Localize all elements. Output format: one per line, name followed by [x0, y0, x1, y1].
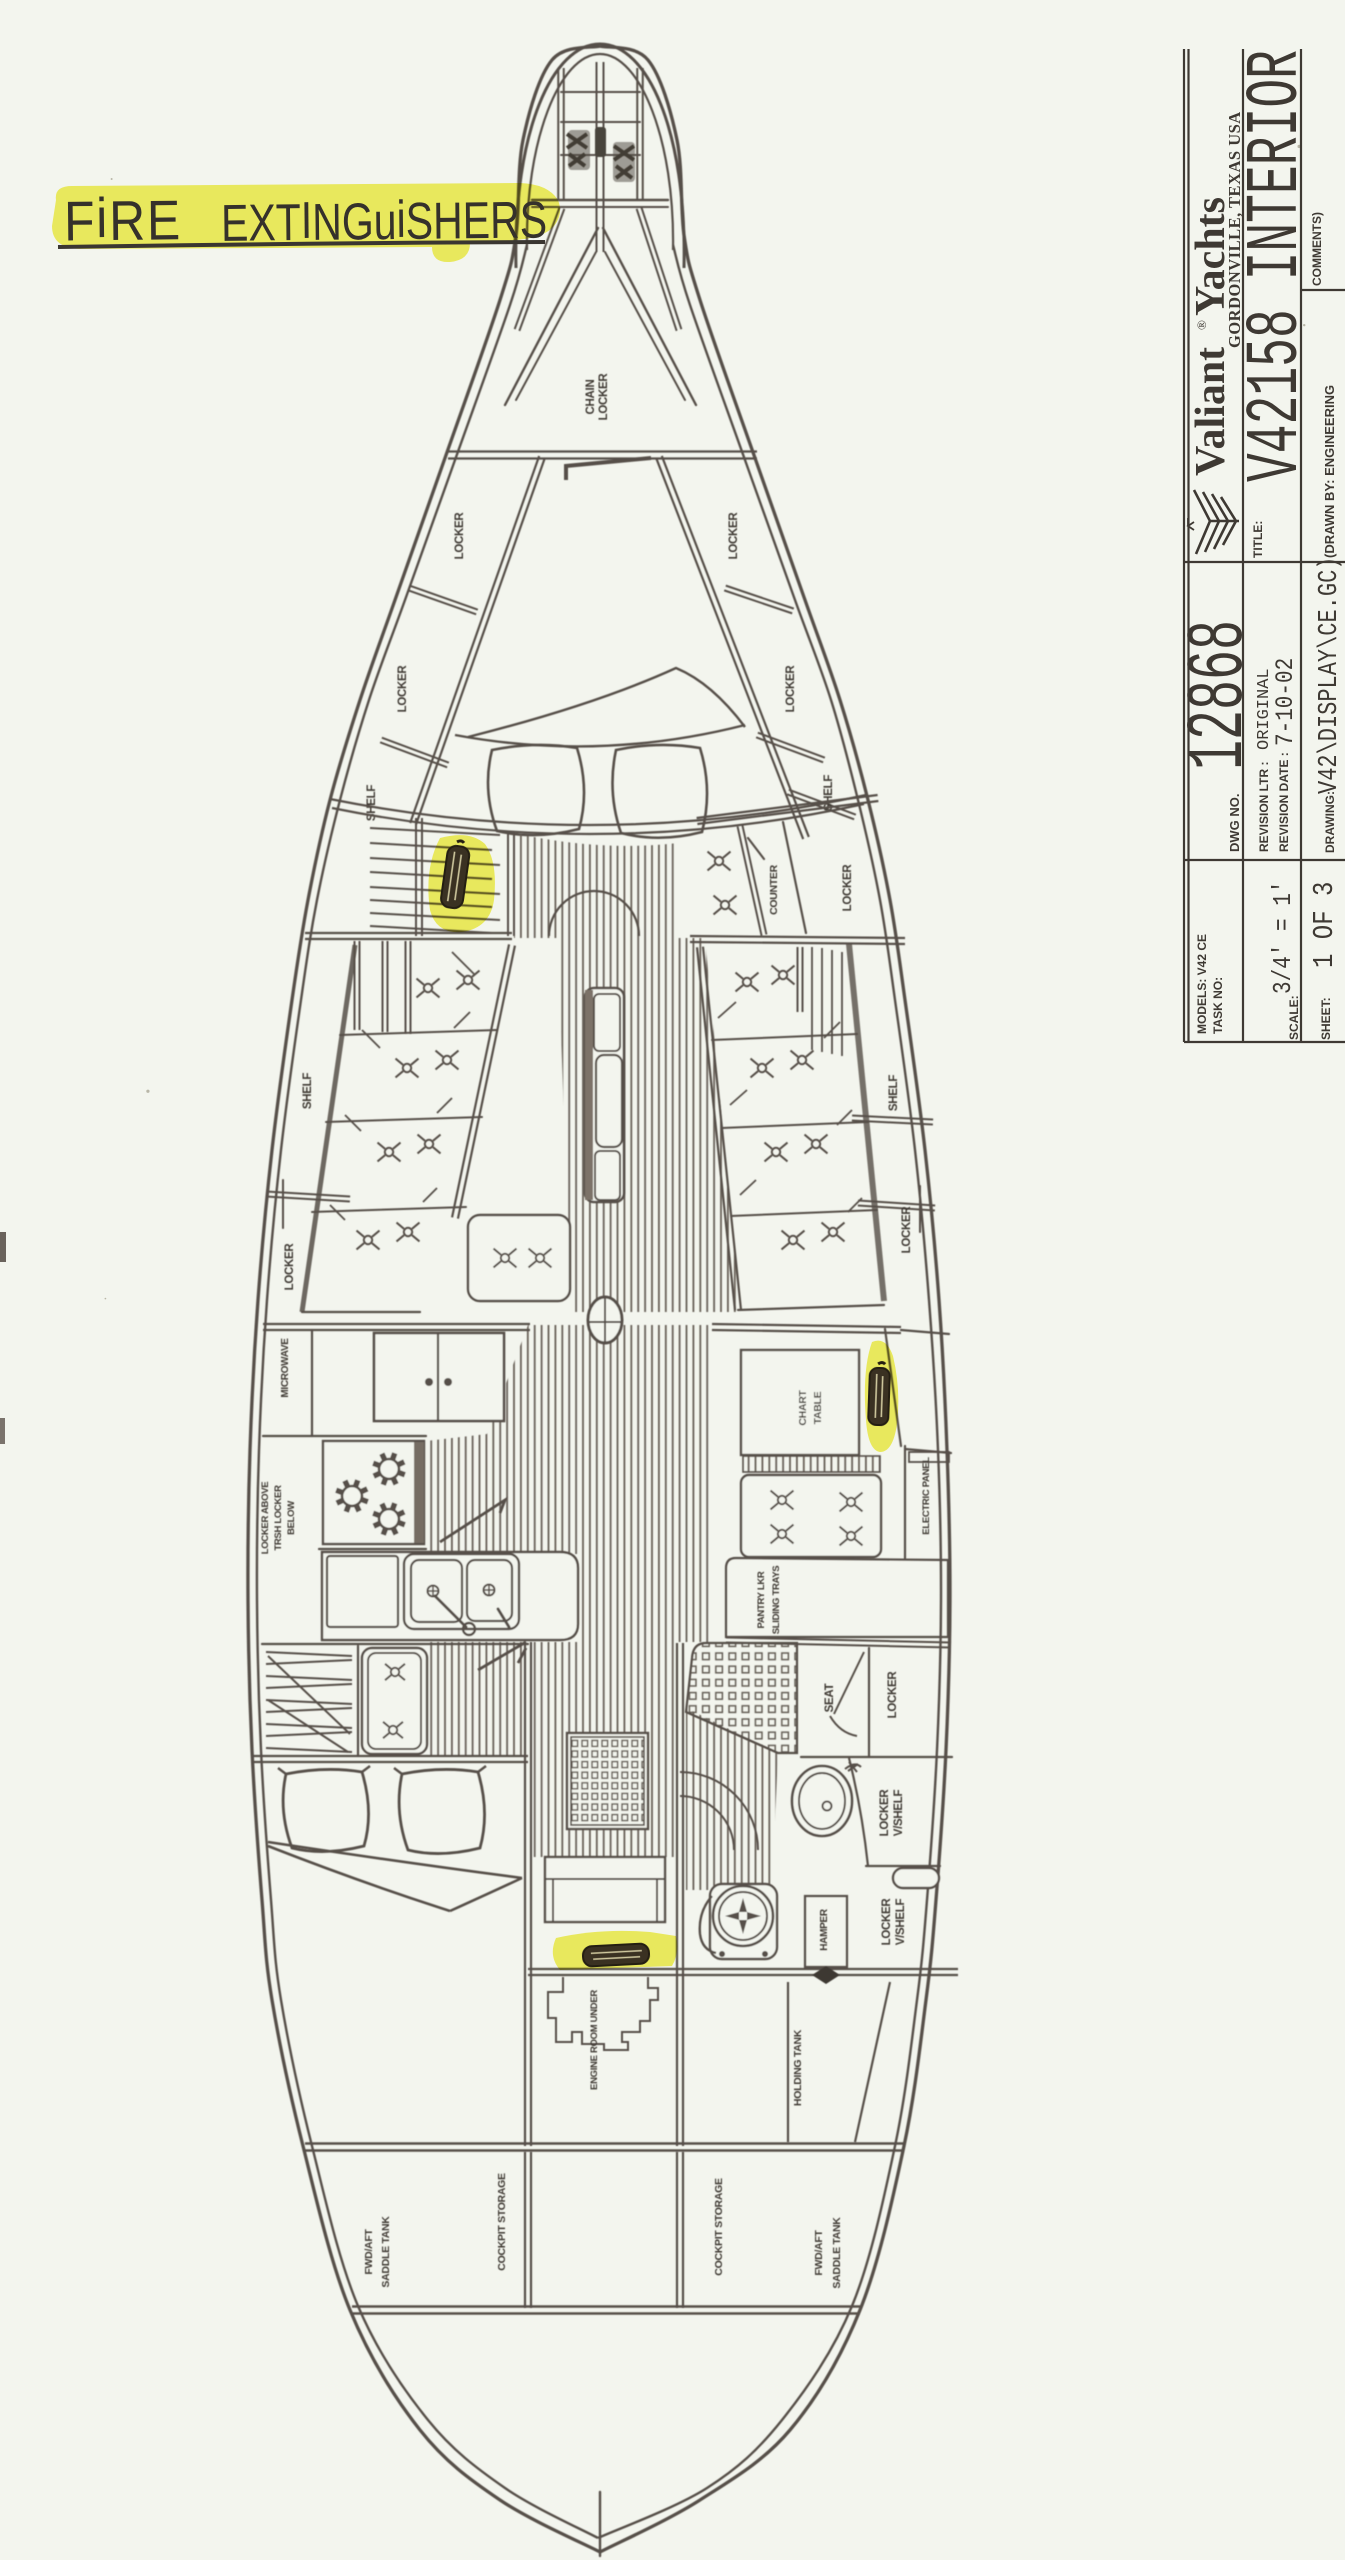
svg-text:MODELS: V42 CE: MODELS: V42 CE [1195, 934, 1209, 1034]
svg-text:CHART: CHART [797, 1389, 809, 1425]
svg-text:LOCKER: LOCKER [785, 665, 797, 713]
svg-text:V42\DISPLAY\CE.GC): V42\DISPLAY\CE.GC) [1315, 557, 1344, 794]
svg-text:LOCKER: LOCKER [284, 1243, 296, 1291]
svg-text:V/SHELF: V/SHELF [895, 1898, 907, 1945]
svg-text:LOCKER: LOCKER [598, 373, 610, 421]
svg-text:LOCKER: LOCKER [842, 864, 854, 912]
svg-text:LOCKER: LOCKER [454, 512, 466, 560]
svg-text:TITLE:: TITLE: [1251, 521, 1265, 558]
svg-text:1 OF 3: 1 OF 3 [1308, 882, 1341, 968]
svg-text:(DRAWN BY: ENGINEERING: (DRAWN BY: ENGINEERING [1322, 385, 1337, 558]
svg-text:LOCKER: LOCKER [901, 1206, 913, 1254]
svg-text:SADDLE TANK: SADDLE TANK [831, 2217, 843, 2289]
svg-text:PANTRY LKR: PANTRY LKR [756, 1571, 767, 1628]
svg-text:LOCKER: LOCKER [397, 665, 409, 713]
svg-text:LOCKER ABOVE: LOCKER ABOVE [260, 1482, 271, 1555]
svg-text:12868: 12868 [1175, 620, 1266, 770]
svg-text:REVISION LTR :: REVISION LTR : [1257, 762, 1271, 852]
svg-text:HAMPER: HAMPER [819, 1908, 830, 1951]
svg-text:®: ® [1194, 320, 1209, 330]
svg-text:COMMENTS): COMMENTS) [1310, 212, 1324, 286]
svg-text:FiRE: FiRE [64, 185, 183, 252]
svg-text:CHAIN: CHAIN [585, 380, 597, 415]
svg-text:LOCKER: LOCKER [728, 512, 740, 560]
svg-text:REVISION DATE :: REVISION DATE : [1277, 752, 1291, 852]
svg-text:SCALE:: SCALE: [1287, 995, 1301, 1040]
svg-text:COUNTER: COUNTER [768, 864, 780, 915]
svg-text:LOCKER: LOCKER [879, 1789, 891, 1837]
svg-text:Valiant: Valiant [1188, 347, 1234, 476]
svg-text:SHEET:: SHEET: [1319, 997, 1333, 1040]
svg-text:7-10-02: 7-10-02 [1271, 658, 1299, 746]
svg-text:DWG NO.: DWG NO. [1227, 794, 1242, 853]
svg-text:DRAWING:: DRAWING: [1323, 791, 1337, 853]
svg-text:SLIDING TRAYS: SLIDING TRAYS [771, 1566, 782, 1635]
svg-text:ELECTRIC PANEL: ELECTRIC PANEL [921, 1457, 932, 1535]
svg-text:TASK NO:: TASK NO: [1211, 977, 1225, 1034]
svg-text:ENGINE ROOM UNDER: ENGINE ROOM UNDER [589, 1990, 600, 2090]
svg-text:LOCKER: LOCKER [881, 1898, 893, 1946]
svg-text:COCKPIT STORAGE: COCKPIT STORAGE [496, 2173, 508, 2271]
svg-text:FWD/AFT: FWD/AFT [363, 2229, 375, 2275]
svg-text:BELOW: BELOW [286, 1501, 297, 1535]
svg-text:LOCKER: LOCKER [887, 1671, 899, 1719]
svg-text:3/4' = 1': 3/4' = 1' [1269, 881, 1299, 994]
svg-text:V/SHELF: V/SHELF [893, 1789, 905, 1836]
svg-text:SADDLE TANK: SADDLE TANK [380, 2216, 392, 2288]
svg-text:SEAT: SEAT [824, 1683, 836, 1712]
svg-text:TABLE: TABLE [812, 1391, 824, 1424]
svg-text:V42158 INTERIOR: V42158 INTERIOR [1234, 50, 1318, 482]
svg-text:SHELF: SHELF [302, 1073, 314, 1109]
svg-text:COCKPIT STORAGE: COCKPIT STORAGE [713, 2178, 725, 2276]
svg-text:MICROWAVE: MICROWAVE [280, 1338, 291, 1398]
svg-text:HOLDING TANK: HOLDING TANK [792, 2029, 804, 2106]
svg-text:SHELF: SHELF [888, 1075, 900, 1111]
svg-text:FWD/AFT: FWD/AFT [813, 2230, 825, 2276]
svg-text:TRSH LOCKER: TRSH LOCKER [273, 1485, 284, 1551]
